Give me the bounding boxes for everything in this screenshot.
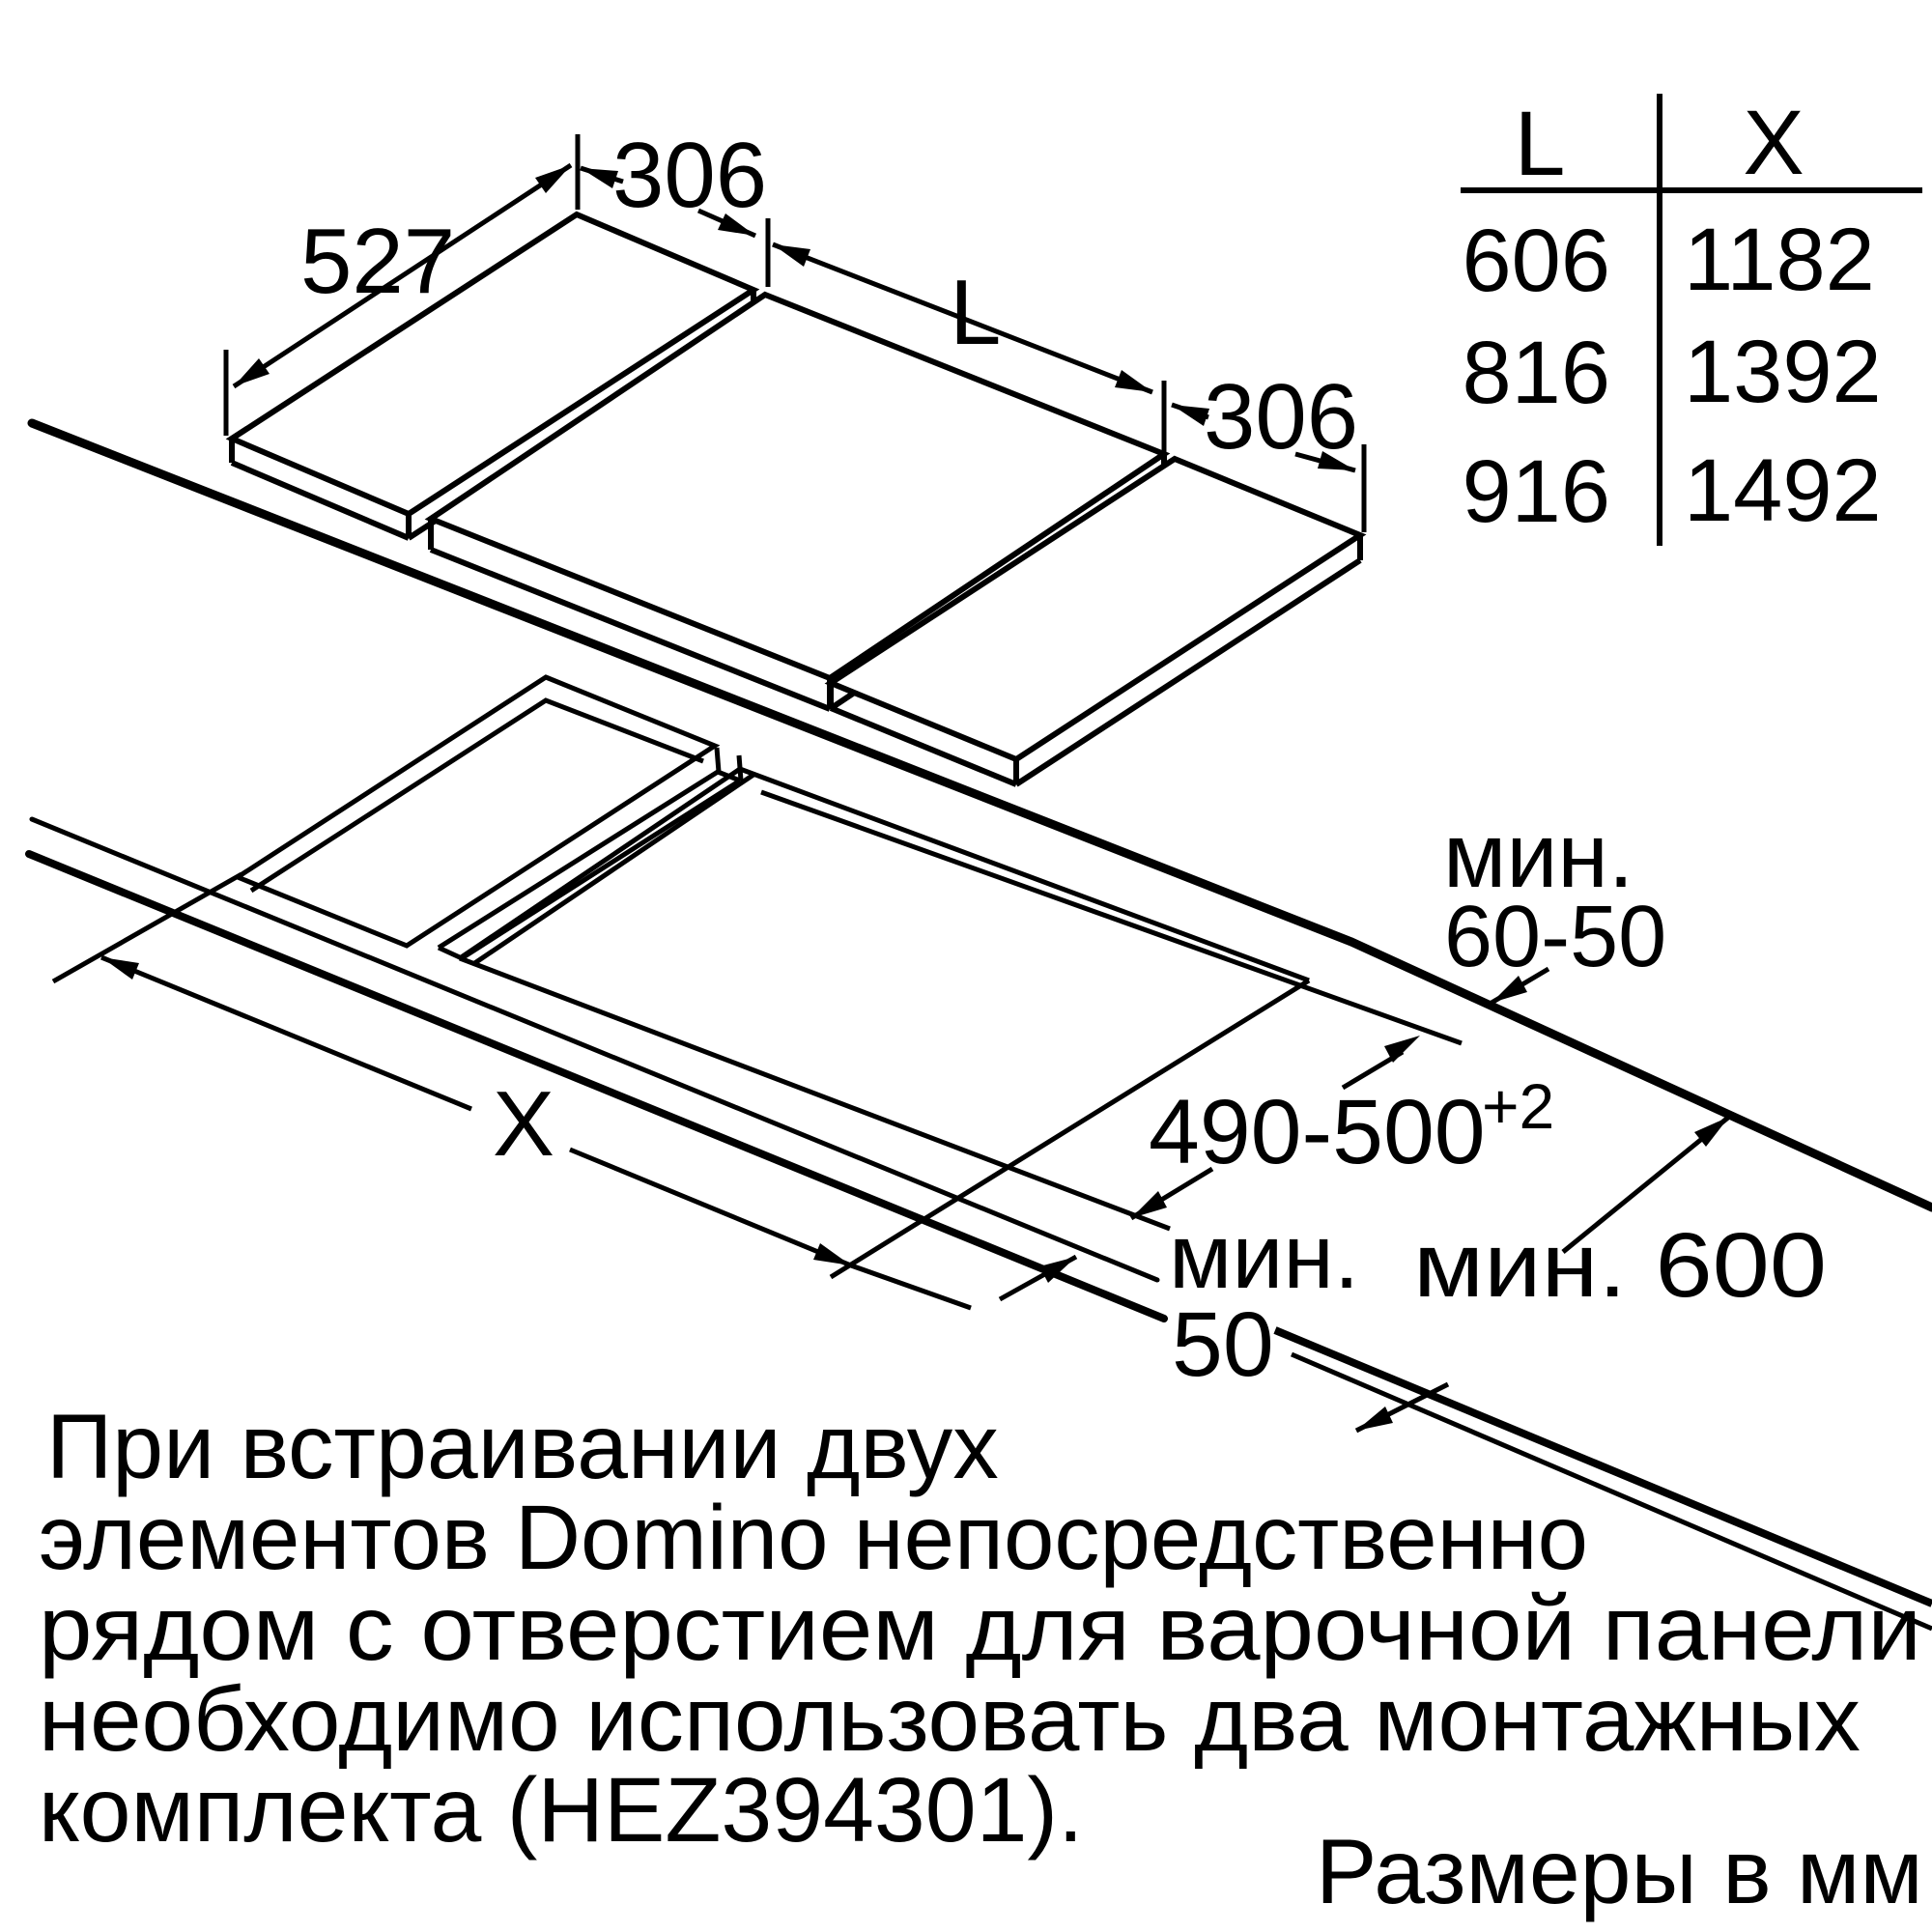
svg-text:необходимо использовать два мо: необходимо использовать два монтажных [39,1668,1861,1771]
svg-text:L: L [1515,93,1566,195]
svg-text:816: 816 [1463,324,1611,422]
svg-text:рядом с отверстием для варочно: рядом с отверстием для варочной панели [39,1577,1921,1680]
svg-text:Размеры в мм: Размеры в мм [1316,1821,1923,1923]
svg-text:При встраивании двух: При встраивании двух [46,1396,999,1498]
svg-text:60-50: 60-50 [1444,889,1666,985]
svg-text:элементов Domino непосредствен: элементов Domino непосредственно [39,1487,1588,1589]
svg-text:306: 306 [612,124,767,227]
svg-text:1392: 1392 [1684,323,1882,421]
svg-text:1492: 1492 [1684,441,1882,540]
svg-text:916: 916 [1463,442,1611,541]
svg-text:X: X [1743,92,1804,194]
svg-text:комплекта (HEZ394301).: комплекта (HEZ394301). [39,1759,1083,1861]
svg-text:606: 606 [1463,212,1611,310]
svg-text:490-500: 490-500 [1149,1081,1486,1183]
svg-text:50: 50 [1172,1293,1274,1396]
svg-text:306: 306 [1204,365,1358,469]
svg-text:мин. 600: мин. 600 [1413,1214,1827,1317]
svg-text:+2: +2 [1482,1070,1554,1142]
svg-text:X: X [493,1072,554,1176]
svg-text:527: 527 [300,210,455,313]
svg-text:1182: 1182 [1684,211,1875,309]
svg-text:L: L [950,261,1001,364]
